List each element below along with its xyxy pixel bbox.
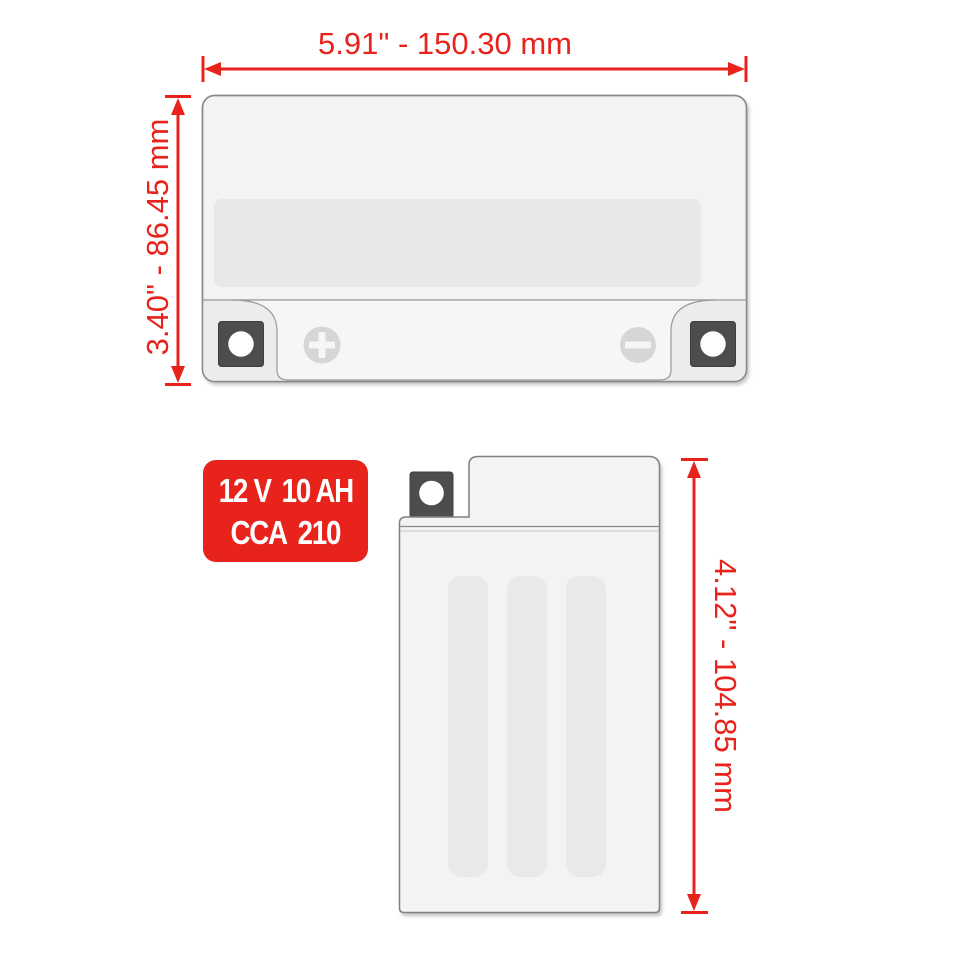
terminal-tab-icon [410,472,453,518]
spec-badge: 12 V 10 AH CCA 210 [203,460,368,562]
depth-dimension-lines [681,460,708,913]
plus-terminal-icon [304,327,341,364]
width-dimension-label: 5.91" - 150.30 mm [220,24,670,64]
battery-cell-stripe [566,576,606,877]
arrow-left-icon [204,62,221,76]
battery-label-panel [214,199,701,287]
arrow-down-icon [687,894,701,911]
arrow-right-icon [728,62,745,76]
battery-dimension-diagram: 5.91" - 150.30 mm 3.40" - 86.45 mm 4.12"… [0,0,960,960]
spec-badge-line-2: CCA 210 [231,516,341,549]
badge-cca-value: 210 [298,516,340,549]
terminal-bolt-right-icon [691,322,736,367]
terminal-bolt-left-icon [219,322,264,367]
badge-cca-label: CCA [231,516,287,549]
battery-cell-stripe [448,576,488,877]
battery-side-view [400,457,660,913]
badge-voltage: 12 V [218,474,270,507]
battery-top-view [203,96,747,382]
height-dimension-label: 3.40" - 86.45 mm [138,87,178,387]
depth-dimension-label: 4.12" - 104.85 mm [705,456,745,916]
arrow-up-icon [687,461,701,478]
badge-capacity: 10 AH [281,474,352,507]
spec-badge-line-1: 12 V 10 AH [218,474,352,507]
minus-terminal-icon [620,327,656,363]
battery-cell-stripe [507,576,547,877]
